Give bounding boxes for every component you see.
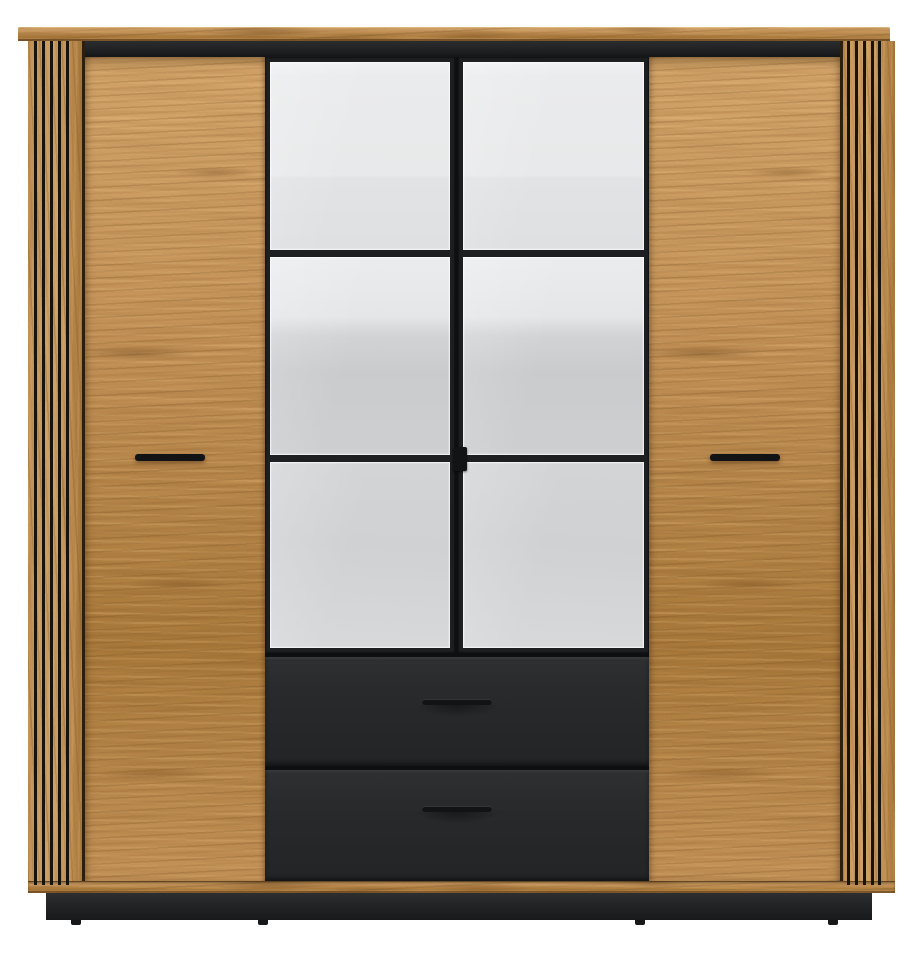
door-handle-left [135,454,205,461]
top-trim-strip [85,41,840,57]
mirror-door-left [265,57,455,653]
drawer-handle-bottom [422,806,492,812]
foot [828,920,838,925]
mirror-pane [463,257,644,455]
side-slat-panel-right [840,41,895,885]
base-strip [28,881,895,893]
drawer-top [265,657,649,766]
mirror-pane [270,62,450,250]
top-board [18,27,890,41]
wood-grain-texture [18,27,890,41]
mirror-pane [270,462,450,648]
mirror-doors-center-handle [453,447,467,471]
wood-door-right [649,57,840,881]
drawer-bottom [265,770,649,881]
plinth [46,893,872,920]
door-handle-right [710,454,780,461]
foot [71,920,81,925]
slat-grooves [28,41,82,885]
foot [635,920,645,925]
center-section [265,57,649,881]
product-photo-wardrobe [0,0,914,953]
wood-grain-texture [85,57,265,881]
wood-grain-texture [649,57,840,881]
mirror-pane [463,62,644,250]
slat-grooves [843,41,895,885]
mirror-pane [270,257,450,455]
wood-door-left [85,57,265,881]
side-slat-panel-left [28,41,85,885]
mirror-pane [463,462,644,648]
wood-grain-texture [28,881,895,893]
drawer-handle-top [422,699,492,705]
mirror-door-right [458,57,649,653]
foot [258,920,268,925]
